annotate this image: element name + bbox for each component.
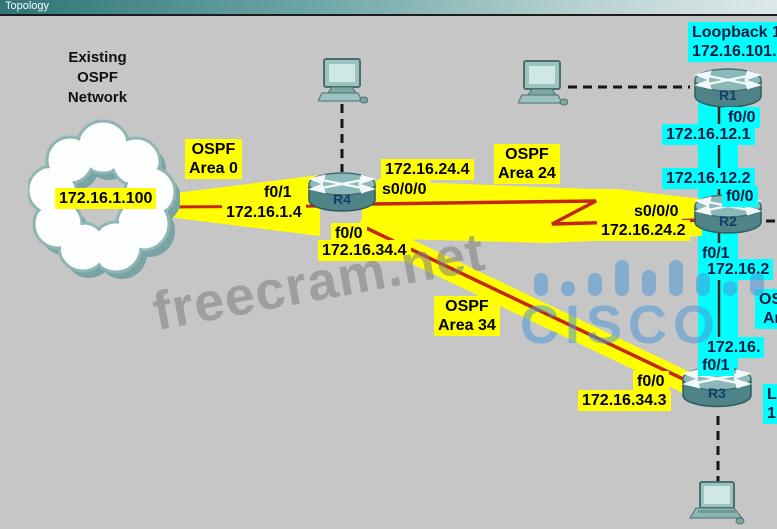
router-name: R2 [692,213,764,229]
label-r3-edge-clipped: L 1 [763,384,777,424]
label-r3-f0-0-ip: 172.16.34.3 [578,390,671,411]
label-r2-s0-0-0: s0/0/0 [630,201,682,222]
router-name: R4 [306,191,378,207]
pc-top-middle [518,60,568,111]
label-r1-loopback: Loopback 10 172.16.101.1 [688,22,777,62]
label-r3-f0-1: f0/1 [698,355,734,376]
router-name: R1 [692,87,764,103]
topology-window: Topology [0,0,777,529]
label-r2-f0-0: f0/0 [722,186,758,207]
label-ospf-area0: OSPF Area 0 [185,139,242,179]
router-r4[interactable]: R4 [306,170,378,221]
label-ospf-area34: OSPF Area 34 [434,296,500,336]
label-r4-s0-0-0: s0/0/0 [378,179,430,200]
label-r2-s0-0-0-ip: 172.16.24.2 [597,220,690,241]
cisco-watermark: CISCO [520,248,764,352]
router-name: R3 [680,385,754,401]
laptop-bottom [688,480,746,529]
label-cloud-address: 172.16.1.100 [55,188,156,209]
cloud-caption: Existing OSPF Network [40,48,155,108]
pc-top-left [318,58,368,109]
label-r1-f0-0-ip: 172.16.12.1 [662,124,755,145]
label-r4-s0-0-0-ip: 172.16.24.4 [381,159,474,180]
desktop-pc-icon [518,60,568,106]
cisco-bridge-icon [534,248,764,296]
label-ospf-area24: OSPF Area 24 [494,144,560,184]
cisco-watermark-text: CISCO [520,298,764,352]
window-title: Topology [5,0,49,12]
laptop-icon [688,480,746,526]
desktop-pc-icon [318,58,368,104]
label-r4-f0-1: f0/1 [260,182,296,203]
title-bar: Topology [0,0,777,16]
label-r3-f0-0: f0/0 [633,371,669,392]
label-r4-f0-1-ip: 172.16.1.4 [222,202,306,223]
